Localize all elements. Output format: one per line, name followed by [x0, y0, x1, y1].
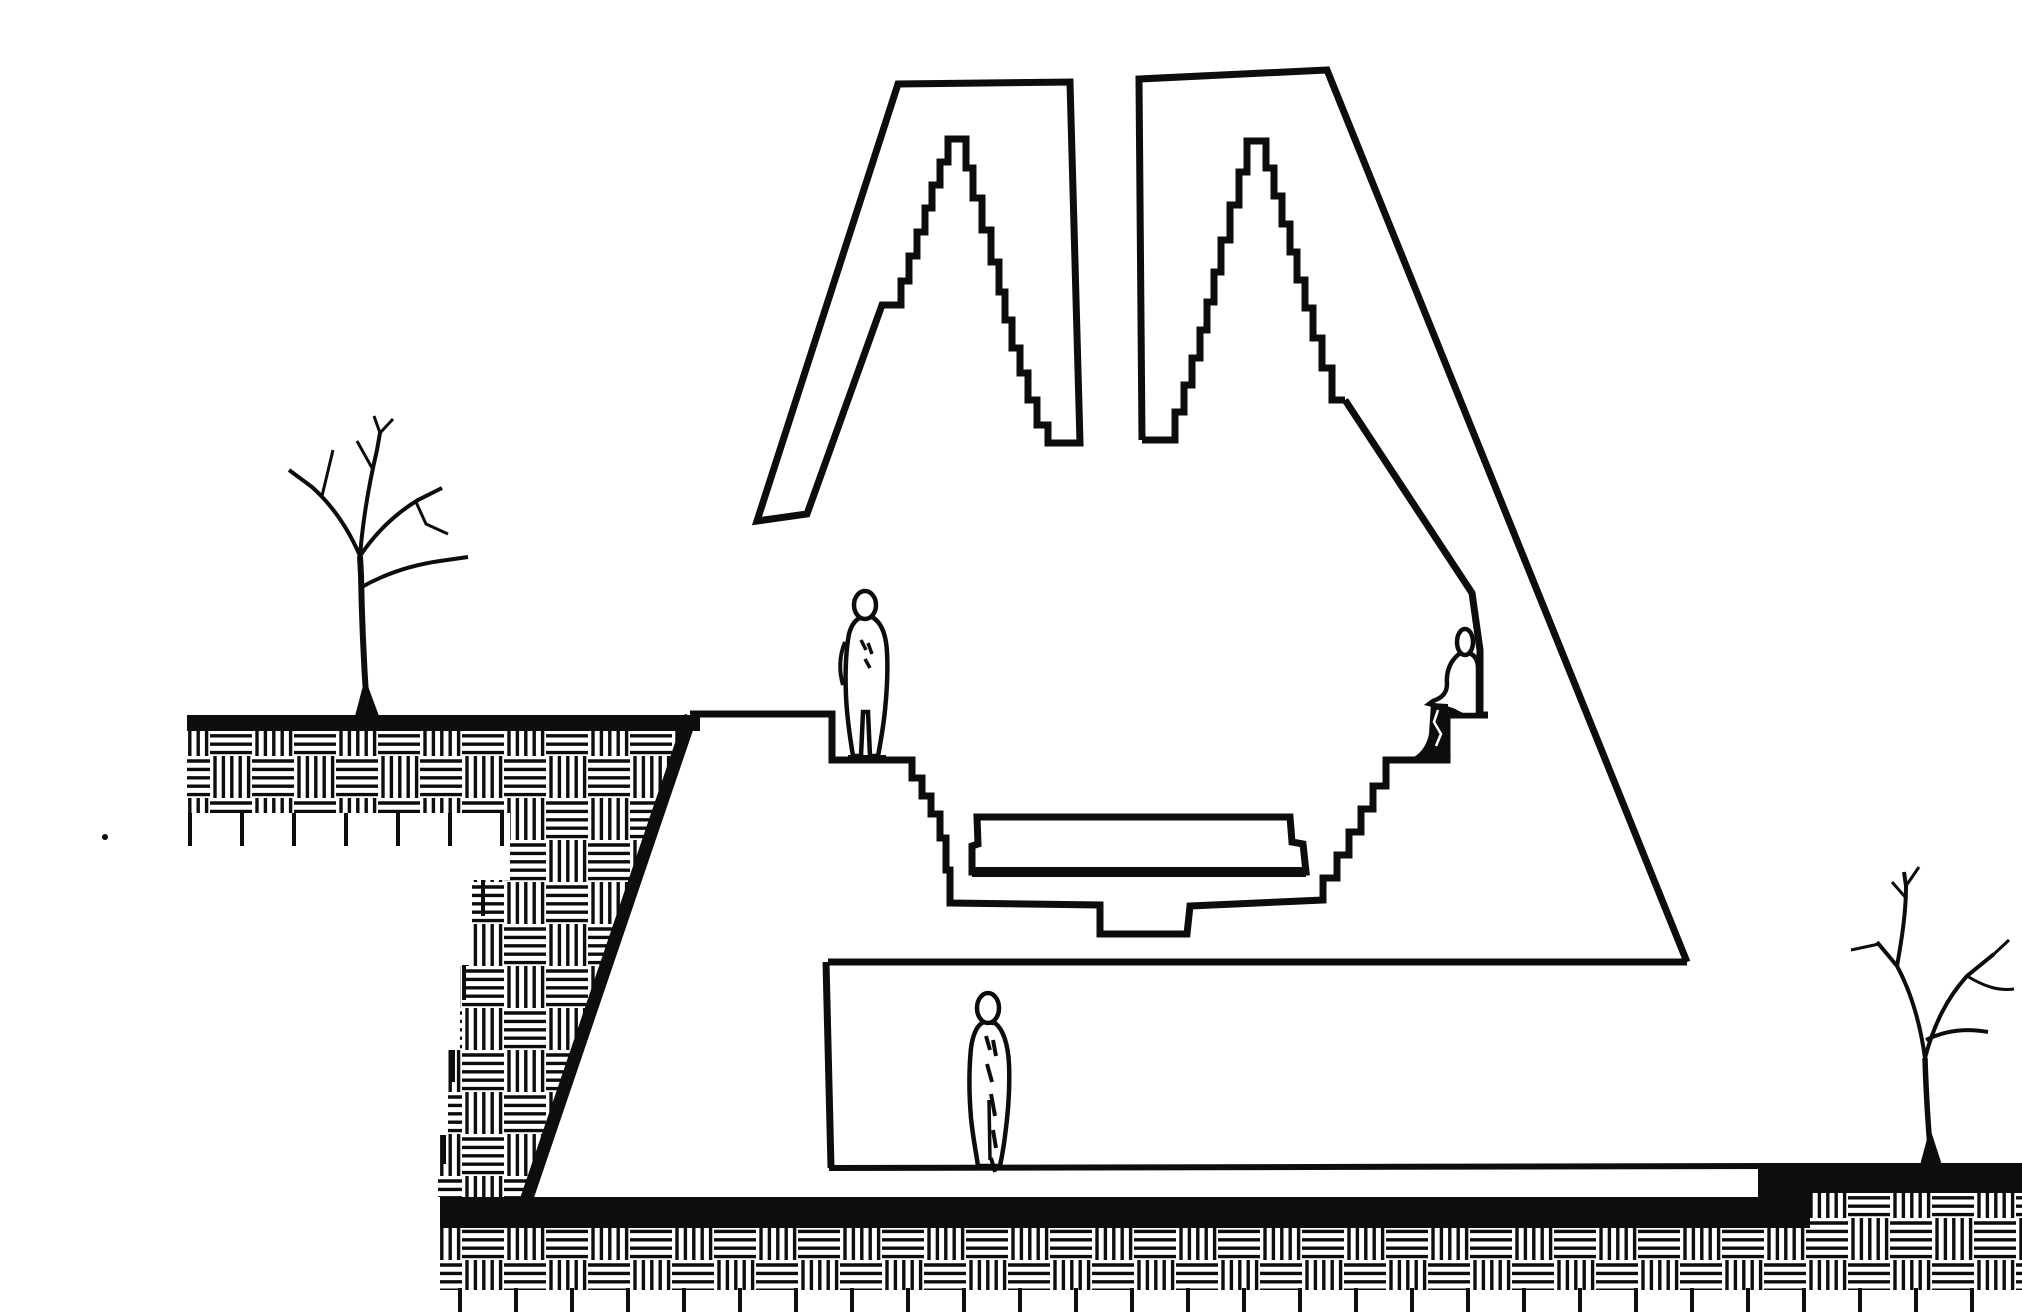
seated-figure-legs [1414, 703, 1451, 757]
soil-ticks-bottom [460, 1288, 1972, 1312]
ground-surface-right [1758, 1163, 2022, 1193]
right-tower-stepped-void [1142, 141, 1345, 440]
lower-hall-floor [829, 1166, 1773, 1168]
soil-ticks-upper [190, 813, 502, 846]
lower-figure-leg-line [989, 1100, 990, 1160]
lower-hall-left-wall [826, 962, 831, 1168]
lower-figure-head [977, 993, 999, 1023]
layer-furniture [972, 817, 1306, 872]
tree-right-branches [1877, 872, 1994, 1058]
tree-right-twigs [1851, 867, 2014, 989]
seated-figure-head [1457, 629, 1473, 655]
section-drawing-page [0, 0, 2022, 1315]
stray-ink-dot [102, 834, 108, 840]
tree-left-twigs [322, 416, 448, 534]
foundation-slab [440, 1197, 1810, 1228]
layer-earth [187, 716, 2022, 1312]
bench-slab [972, 817, 1306, 872]
standing-figure-head [854, 591, 876, 619]
layer-structure [690, 70, 1773, 1168]
left-stepped-tower [757, 82, 1080, 521]
tree-left-trunk [360, 556, 367, 710]
earth-hatch-bottom [440, 1228, 2022, 1290]
standing-figure-body [846, 617, 888, 756]
section-svg [0, 0, 2022, 1315]
layer-people [840, 591, 1478, 1172]
tree-left-branches [289, 433, 468, 588]
layer-marks [102, 834, 108, 840]
